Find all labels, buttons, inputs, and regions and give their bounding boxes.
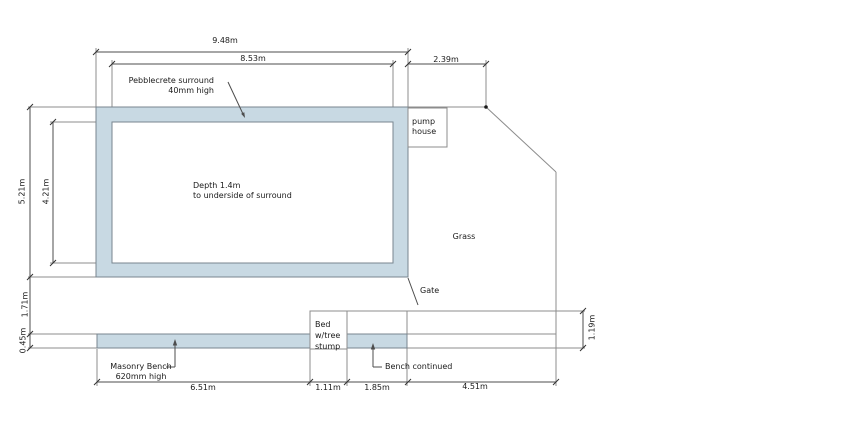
dim-outer-width: 9.48m: [195, 36, 255, 45]
fence-corner-dot: [484, 105, 488, 109]
gate-label: Gate: [420, 286, 439, 295]
depth-note: Depth 1.4m to underside of surround: [193, 181, 292, 201]
dim-gap-height: 1.71m: [21, 287, 30, 323]
bed-label-line2: w/tree: [315, 330, 340, 341]
dim-bench-depth: 0.45m: [19, 323, 28, 359]
dim-bench-offset: 1.19m: [588, 310, 597, 346]
depth-note-line1: Depth 1.4m: [193, 181, 292, 191]
bed-label: Bed w/tree stump: [315, 319, 340, 352]
bench-continued-label: Bench continued: [385, 362, 452, 371]
dim-inner-height: 4.21m: [42, 174, 51, 210]
grass-label: Grass: [444, 232, 484, 241]
bed-label-line1: Bed: [315, 319, 340, 330]
dim-outer-height: 5.21m: [18, 174, 27, 210]
masonry-bench-line1: Masonry Bench: [96, 362, 186, 372]
pump-house-label: pump house: [412, 117, 436, 137]
dim-side-width: 2.39m: [416, 55, 476, 64]
pump-house-line1: pump: [412, 117, 436, 127]
surround-note: Pebblecrete surround 40mm high: [104, 76, 214, 96]
dim-bench-length: 6.51m: [173, 383, 233, 392]
masonry-bench-note: Masonry Bench 620mm high: [96, 362, 186, 382]
fence-diagonal: [486, 107, 556, 172]
dim-grass-width: 4.51m: [445, 382, 505, 391]
pump-house-line2: house: [412, 127, 436, 137]
dim-bench-continued-length: 1.85m: [347, 383, 407, 392]
depth-note-line2: to underside of surround: [193, 191, 292, 201]
masonry-bench-strip: [97, 334, 407, 348]
bed-label-line3: stump: [315, 341, 340, 352]
pool-site-plan: 9.48m 8.53m 2.39m 5.21m 4.21m 1.71m 0.45…: [0, 0, 863, 423]
surround-note-line2: 40mm high: [104, 86, 214, 96]
dim-inner-width: 8.53m: [223, 54, 283, 63]
masonry-bench-line2: 620mm high: [96, 372, 186, 382]
surround-note-line1: Pebblecrete surround: [104, 76, 214, 86]
